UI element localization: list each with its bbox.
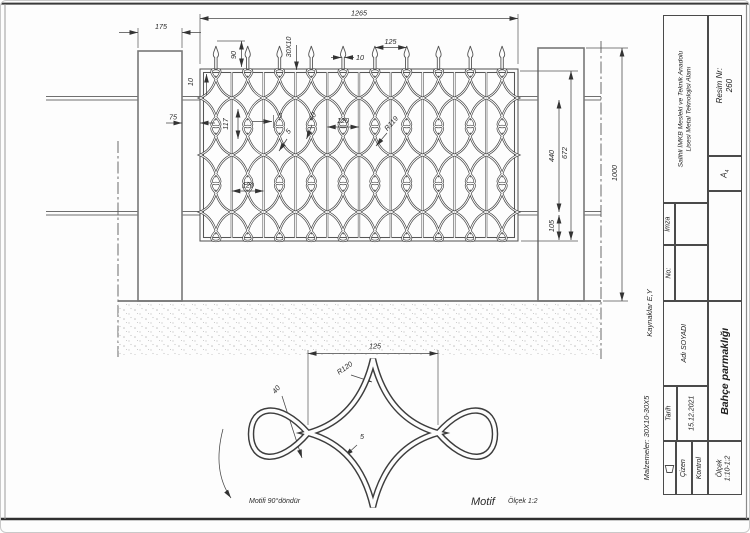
tarih-value: 15.12.2021 (688, 396, 696, 431)
empty-cell (708, 191, 742, 301)
detail-rotate-note: Motifi 90°döndür (249, 497, 301, 505)
imza-label-cell: İmza (663, 203, 675, 245)
drawing-sheet: 1265 175 125 90 30X10 10 10 75 117 5 5 4… (0, 0, 750, 533)
motif-detail (251, 359, 495, 507)
detail-dim-r120: R120 (335, 359, 354, 376)
drawing-canvas: 1265 175 125 90 30X10 10 10 75 117 5 5 4… (1, 1, 750, 533)
school-cell: Salihli İMKB Mesleki ve Teknik Anadolu L… (663, 15, 708, 203)
drawing-title-cell: Bahçe parmaklığı (708, 301, 742, 441)
kontrol-label: Kontrol (696, 457, 704, 479)
dim-pillar-width: 175 (155, 22, 168, 31)
paper-letter: A (719, 172, 728, 177)
no-label: No: (665, 268, 673, 279)
drawing-title: Bahçe parmaklığı (719, 328, 732, 415)
dim-105: 105 (547, 219, 556, 232)
title-block: Salihli İMKB Mesleki ve Teknik Anadolu L… (663, 15, 742, 495)
note-kaynaklar: Kaynaklar E,Y (645, 288, 654, 337)
resim-value: 260 (725, 68, 735, 104)
dim-440: 440 (547, 150, 556, 162)
paper-size-cell: A4 (708, 156, 742, 191)
right-pillar (538, 48, 584, 301)
detail-caption: Motif (471, 496, 496, 508)
tarih-label: Tarih (666, 406, 674, 421)
imza-value-cell (675, 203, 708, 245)
dim-col-120b: 120 (242, 181, 254, 190)
dim-gap-75: 75 (169, 113, 178, 122)
tarih-label-cell: Tarih (663, 386, 677, 441)
resim-cell: Resim Nr: 260 (708, 15, 742, 156)
dim-spear-height: 90 (229, 51, 238, 59)
cizen-label: Çizen (680, 459, 688, 477)
dim-profile: 30X10 (284, 37, 293, 58)
dim-r119: R119 (382, 114, 400, 132)
dim-672: 672 (560, 147, 569, 159)
note-malzemeler: Malzemeler: 30X10-30X5 (642, 395, 651, 480)
no-label-cell: No: (663, 245, 675, 301)
dim-spear-pitch: 125 (385, 37, 398, 46)
name-cell: Adı SOYADI (663, 301, 708, 386)
olcek-label: Ölçek (717, 455, 725, 481)
school-line2: Lisesi Metal Teknolojisi Alanı (686, 51, 694, 168)
detail-dim-125: 125 (369, 342, 382, 351)
kontrol-cell: Kontrol (692, 441, 708, 495)
tarih-value-cell: 15.12.2021 (677, 386, 708, 441)
dim-total-width: 1265 (351, 9, 368, 18)
olcek-cell: Ölçek 1:10-1:2 (708, 441, 742, 495)
dim-bar-10: 10 (356, 53, 364, 62)
olcek-value: 1:10-1:2 (725, 455, 733, 481)
dim-rail-10: 10 (186, 78, 195, 86)
imza-label: İmza (665, 216, 673, 231)
school-line1: Salihli İMKB Mesleki ve Teknik Anadolu (677, 51, 685, 168)
dim-5-strip: 5 (283, 126, 293, 136)
no-value-cell (675, 245, 708, 301)
detail-scale-note: Ölçek 1:2 (508, 497, 538, 505)
projection-cell (663, 441, 676, 495)
dim-pitch-117: 117 (221, 117, 230, 129)
cizen-cell: Çizen (676, 441, 692, 495)
ground (118, 301, 601, 355)
name-value: Adı SOYADI (681, 324, 689, 363)
left-pillar (138, 51, 182, 301)
dim-col-120a: 120 (337, 116, 349, 125)
resim-label: Resim Nr: (715, 68, 725, 104)
detail-dim-5: 5 (360, 432, 365, 441)
paper-sub: 4 (725, 169, 731, 172)
detail-dim-40: 40 (270, 383, 282, 395)
dim-1000: 1000 (610, 165, 619, 181)
projection-symbol-icon (665, 463, 675, 474)
